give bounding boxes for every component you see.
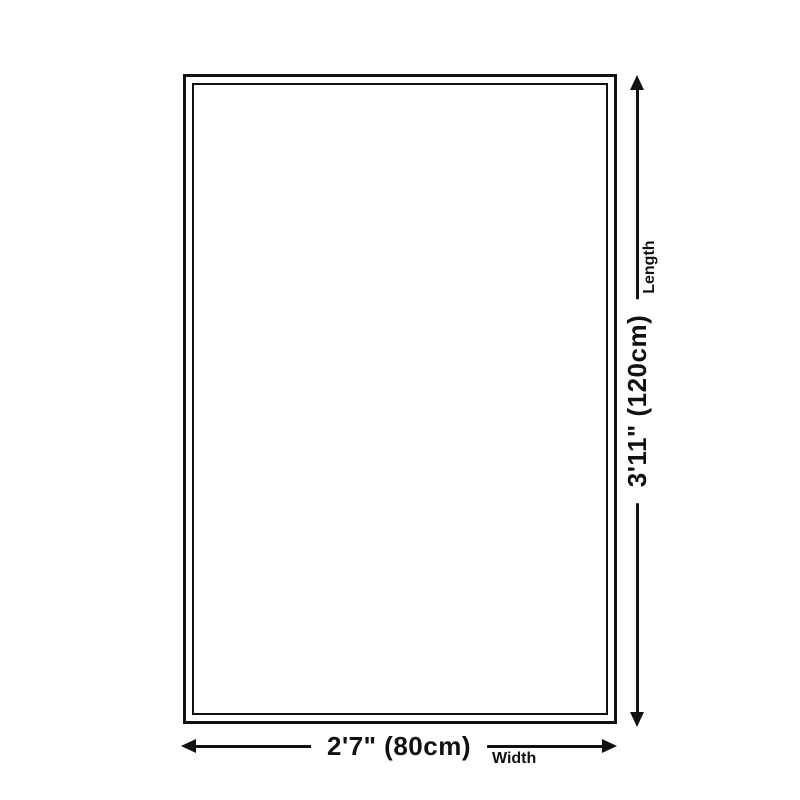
length-axis-label: Length [642, 240, 658, 293]
width-dimension: 2'7" (80cm) Width [181, 716, 617, 776]
arrow-left-icon [181, 739, 196, 753]
arrow-right-icon [602, 739, 617, 753]
width-dimension-label: 2'7" (80cm) Width [311, 730, 487, 762]
rug-outline-outer [183, 74, 617, 724]
length-dimension-label: 3'11" (120cm) Length [621, 299, 653, 503]
rug-size-diagram: 3'11" (120cm) Length 2'7" (80cm) Width [0, 0, 800, 800]
length-value: 3'11" (120cm) [621, 299, 653, 503]
width-axis-label: Width [492, 751, 536, 767]
arrow-down-icon [630, 712, 644, 727]
length-dimension: 3'11" (120cm) Length [607, 75, 667, 727]
arrow-up-icon [630, 75, 644, 90]
width-value: 2'7" (80cm) [311, 730, 487, 762]
rug-outline-inner [192, 83, 608, 715]
